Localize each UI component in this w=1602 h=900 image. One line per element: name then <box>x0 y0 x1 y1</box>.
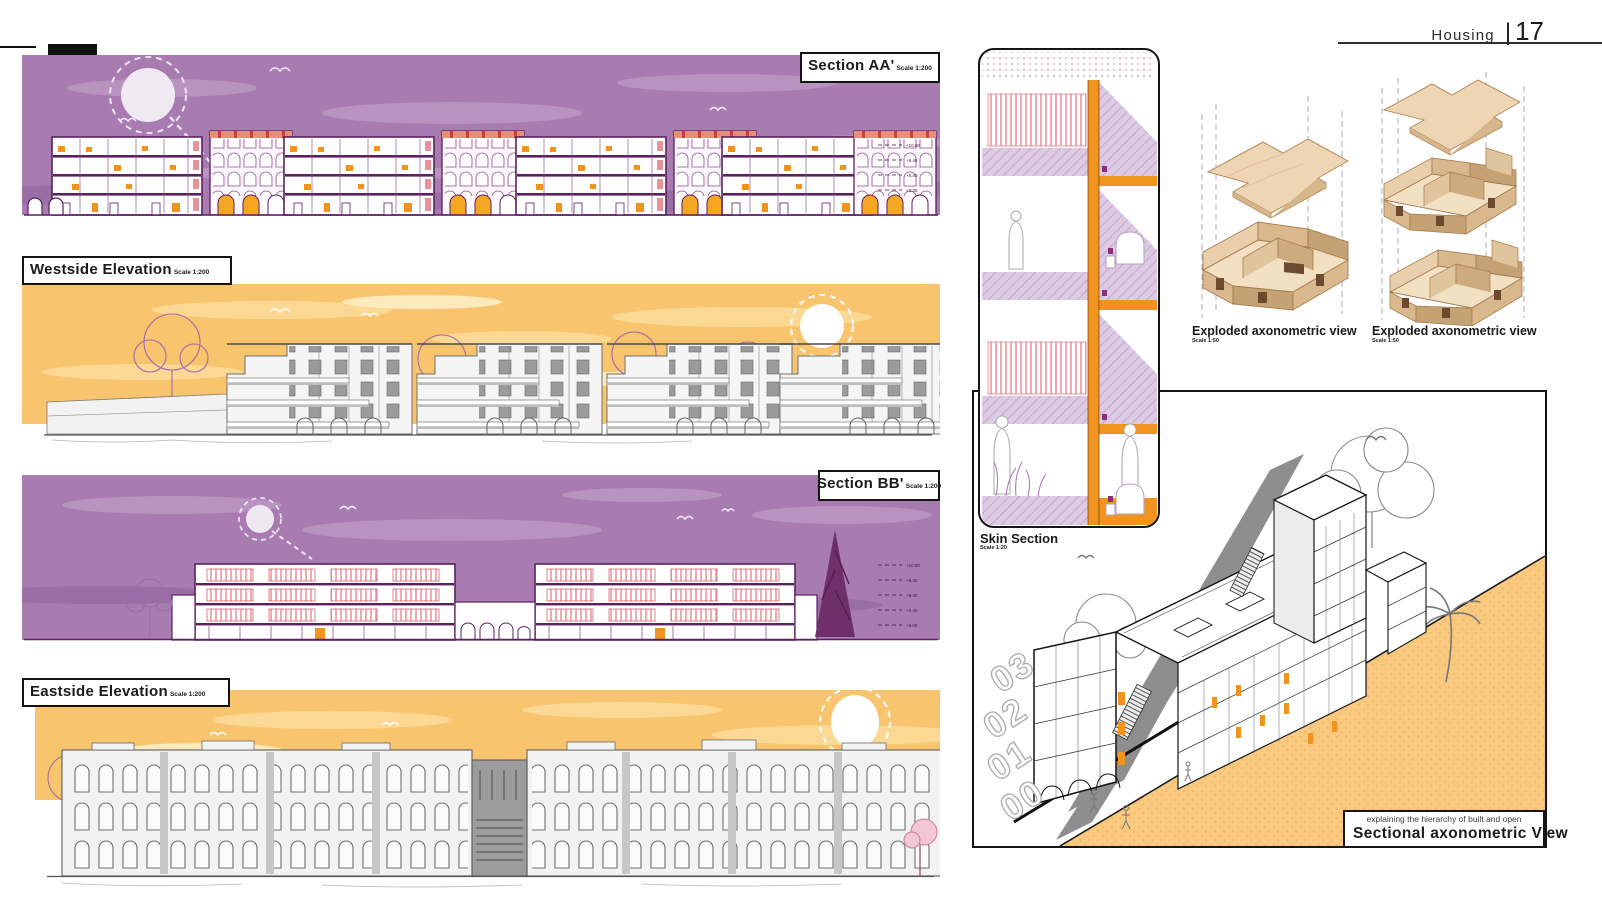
level-annotation: +10.50 <box>906 143 920 148</box>
westside-elevation-label: Westside Elevation Scale 1:200 <box>22 256 232 285</box>
roof-hatch <box>982 52 1155 80</box>
panel-title: Westside Elevation <box>30 261 172 278</box>
skin-section-drawing <box>980 50 1157 525</box>
panel-title: Exploded axonometric view <box>1192 324 1357 338</box>
eastside-elevation-label: Eastside Elevation Scale 1:200 <box>22 678 230 707</box>
roof-plate <box>1208 139 1348 218</box>
panel-title: Eastside Elevation <box>30 683 168 700</box>
exploded-axo-left-label: Exploded axonometric view Scale 1:50 <box>1192 324 1357 344</box>
panel-scale: Scale 1:200 <box>906 483 941 490</box>
panel-scale: Scale 1:200 <box>170 691 205 698</box>
panel-scale: Scale 1:50 <box>1192 338 1357 344</box>
eastside-elevation-drawing <box>22 680 940 898</box>
header-rule <box>1338 42 1602 44</box>
caption-subtitle: explaining the hierarchy of built and op… <box>1353 814 1535 825</box>
westside-elevation-drawing <box>22 284 940 446</box>
table <box>1284 262 1304 274</box>
level-annotation: +3.40 <box>906 608 918 613</box>
section-bb-label: Section BB' Scale 1:200 <box>818 470 940 501</box>
skin-section-card <box>978 48 1160 528</box>
caption-title: Sectional axonometric View <box>1353 825 1535 842</box>
panel-scale: Scale 1:200 <box>174 269 209 276</box>
exploded-axo-right-drawing <box>1366 48 1542 326</box>
section-aa-label: Section AA' Scale 1:200 <box>800 52 940 83</box>
panel-scale: Scale 1:200 <box>896 65 931 72</box>
level-annotation: +6.40 <box>906 173 918 178</box>
panel-title: Section AA' <box>808 57 894 74</box>
aa-buildings <box>24 131 938 215</box>
panel-title: Section BB' <box>817 475 904 492</box>
level-annotation: +10.50 <box>906 563 920 568</box>
exploded-axo-left-drawing <box>1188 56 1360 322</box>
portfolio-page: Housing | 17 <box>0 0 1602 900</box>
panel-title: Exploded axonometric view <box>1372 324 1537 338</box>
skin-section-label: Skin Section Scale 1:20 <box>980 532 1058 551</box>
level-annotation: +3.40 <box>906 188 918 193</box>
panel-title: Skin Section <box>980 532 1058 545</box>
level-annotation: +9.40 <box>906 578 918 583</box>
level-annotation: +9.40 <box>906 158 918 163</box>
es-buildings <box>47 740 940 887</box>
section-bb-drawing: +10.50 +9.40 +6.40 +3.40 +0.00 <box>22 475 940 641</box>
corner-rule <box>0 46 36 48</box>
level-annotation: +0.00 <box>906 623 918 628</box>
sectional-axo-caption: explaining the hierarchy of built and op… <box>1343 810 1545 848</box>
unit-model <box>1203 222 1348 310</box>
level-annotation: +6.40 <box>906 593 918 598</box>
panel-scale: Scale 1:50 <box>1372 338 1537 344</box>
railings <box>988 94 1086 394</box>
exploded-axo-right-label: Exploded axonometric view Scale 1:50 <box>1372 324 1537 344</box>
roof-plate <box>1384 80 1520 155</box>
